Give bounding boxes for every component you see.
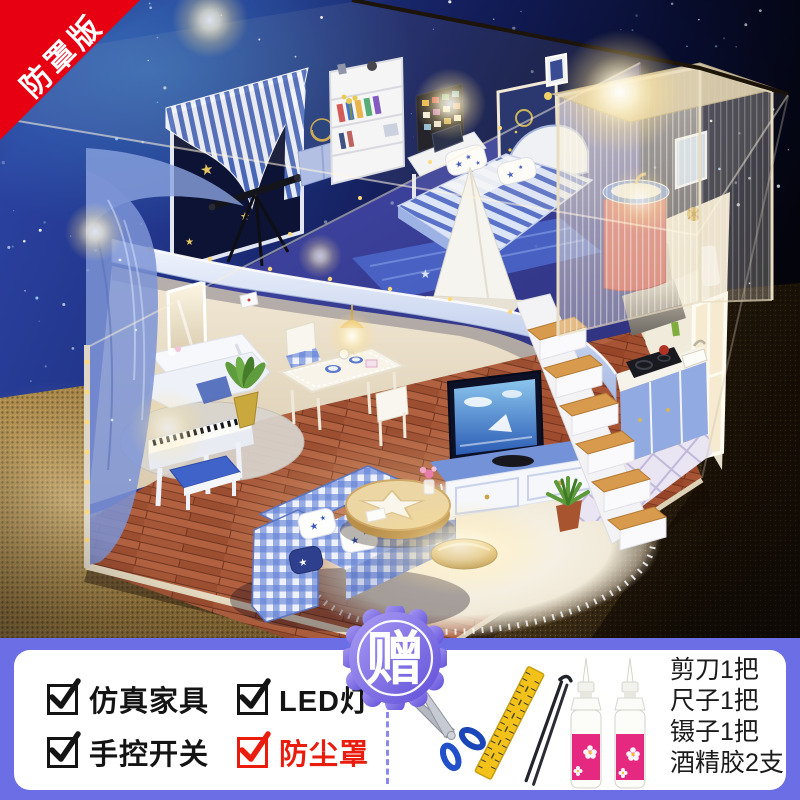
gift-item: 尺子1把 <box>670 686 784 717</box>
checkbox-checked-icon <box>47 684 78 715</box>
product-image: ★★ ★★ ★ ★ ★ ★ ★ <box>0 0 800 800</box>
glue-bottle-icon <box>571 658 645 788</box>
checkbox-checked-icon <box>47 737 78 768</box>
dashed-divider <box>386 712 389 784</box>
feature-label: 手控开关 <box>89 731 209 773</box>
checkbox-checked-icon <box>237 684 268 715</box>
gift-item: 剪刀1把 <box>670 655 784 686</box>
feature-label: 仿真家具 <box>89 678 209 720</box>
feature-item-dustcover: 防尘罩 <box>237 731 369 773</box>
gift-item: 酒精胶2支 <box>670 748 784 779</box>
gift-list: 剪刀1把 尺子1把 镊子1把 酒精胶2支 <box>670 655 784 779</box>
feature-item-switch: 手控开关 <box>47 731 209 773</box>
feature-item-furniture: 仿真家具 <box>47 678 209 720</box>
badge-label: 赠 <box>366 627 424 692</box>
checkbox-checked-icon <box>237 737 268 768</box>
gift-item: 镊子1把 <box>670 717 784 748</box>
dollhouse-photo: ★★ ★★ ★ ★ ★ ★ ★ <box>0 0 800 643</box>
feature-label: 防尘罩 <box>279 731 369 773</box>
gift-badge: 赠 <box>343 606 447 710</box>
